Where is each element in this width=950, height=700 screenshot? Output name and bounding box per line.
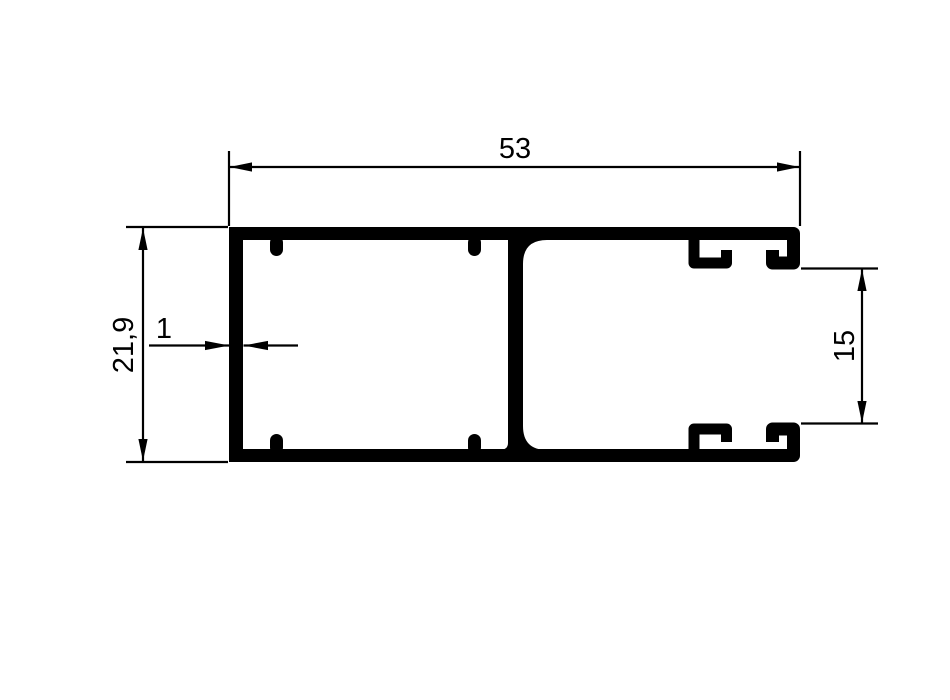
fillet-center-wall-top-right [523, 240, 547, 264]
arrowhead-width-left [230, 162, 253, 171]
dimension-wall-thickness: 1 [149, 313, 298, 350]
profile-hook-top-left [694, 236, 727, 263]
rib-stud-top-right [468, 236, 481, 256]
arrowhead-width-right [777, 162, 800, 171]
dim-label-channel-height: 15 [829, 330, 861, 362]
fillet-center-wall-bottom-left [499, 443, 508, 450]
arrowhead-thickness-right [244, 341, 268, 350]
rib-stud-bottom-right [468, 434, 481, 454]
arrowhead-height-top [138, 228, 147, 250]
dim-label-overall-height: 21,9 [108, 317, 140, 373]
rib-stud-top-left [270, 236, 283, 256]
fillet-center-wall-bottom-right [523, 426, 547, 450]
profile-geometry [229, 227, 794, 462]
technical-drawing-canvas: 53 21,9 1 15 [0, 0, 950, 700]
arrowhead-thickness-left [205, 341, 229, 350]
dim-label-overall-width: 53 [499, 133, 531, 165]
arrowhead-channel-bottom [857, 401, 866, 423]
profile-drawing-svg: 53 21,9 1 15 [0, 0, 950, 700]
arrowhead-height-bottom [138, 439, 147, 461]
rib-stud-bottom-left [270, 434, 283, 454]
dimension-channel-height: 15 [801, 269, 878, 424]
dim-label-wall-thickness: 1 [156, 313, 172, 345]
arrowhead-channel-top [857, 269, 866, 291]
dimension-overall-width: 53 [229, 133, 800, 226]
